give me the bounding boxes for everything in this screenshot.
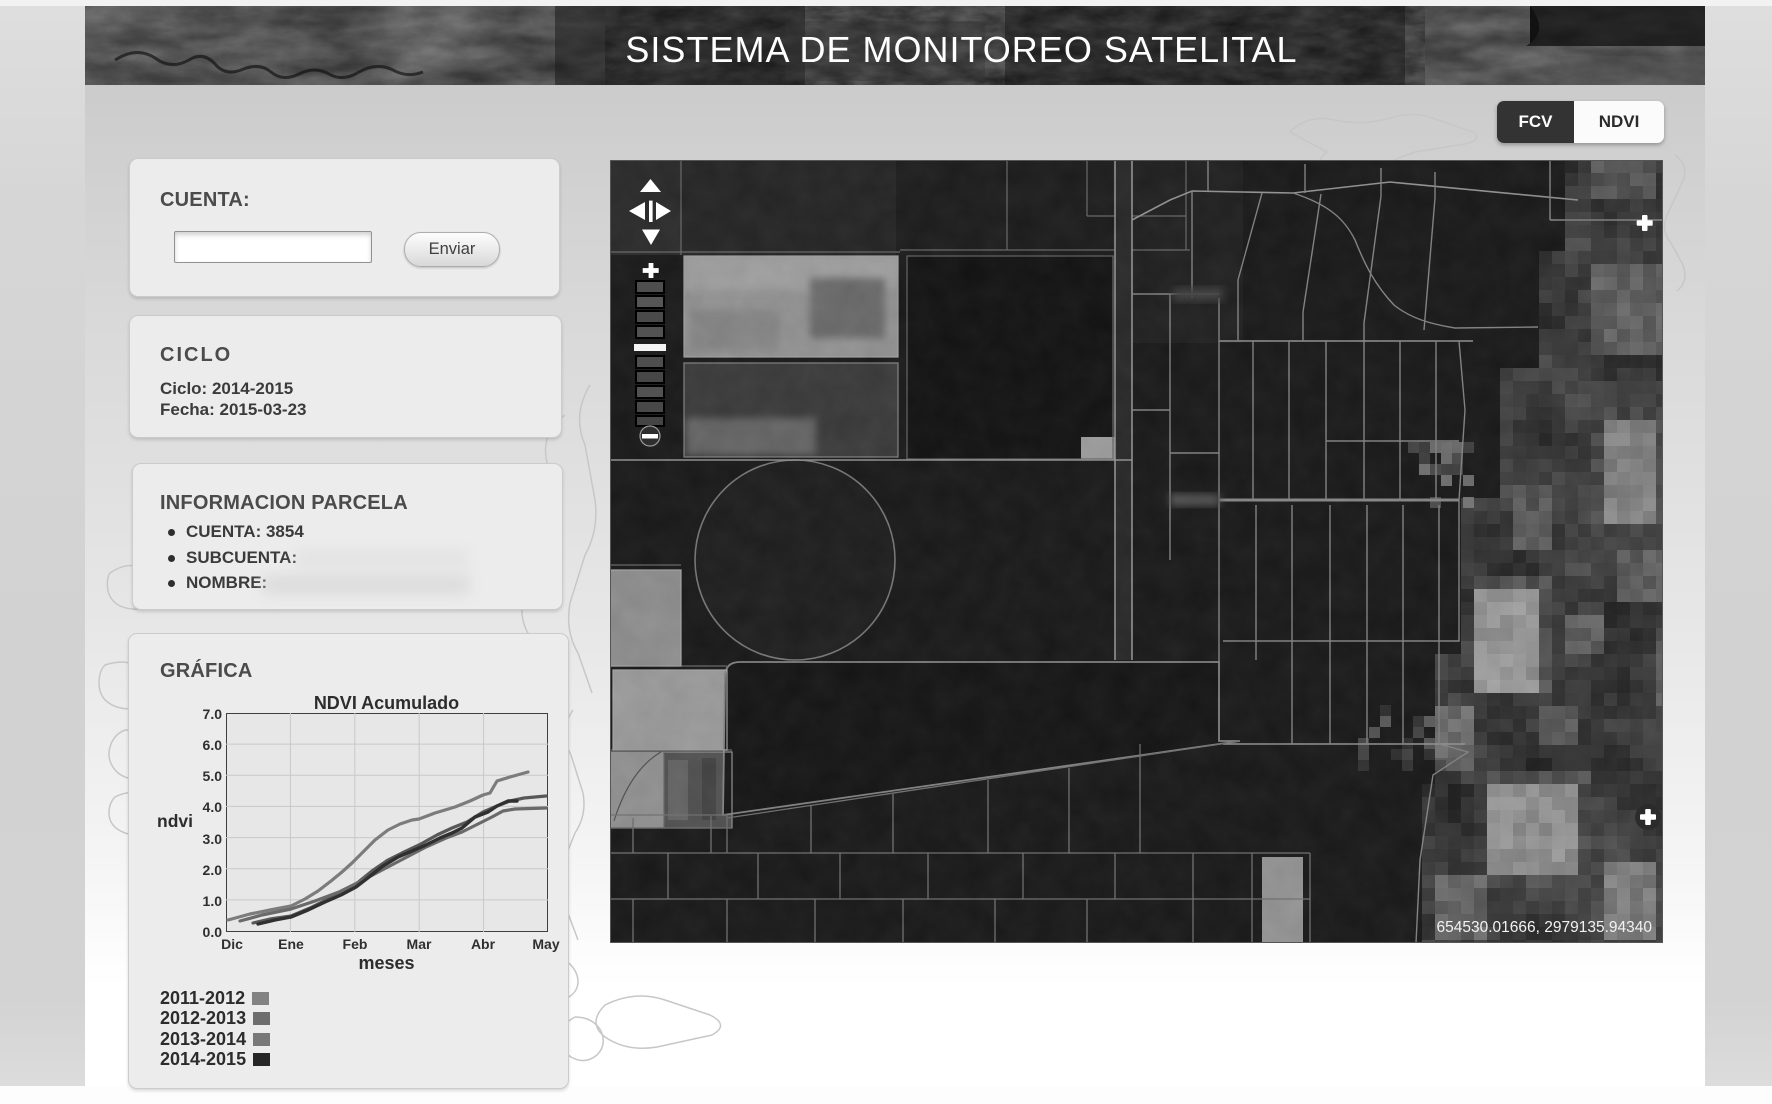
svg-text:654530.01666, 2979135.94340: 654530.01666, 2979135.94340 (1437, 919, 1653, 936)
